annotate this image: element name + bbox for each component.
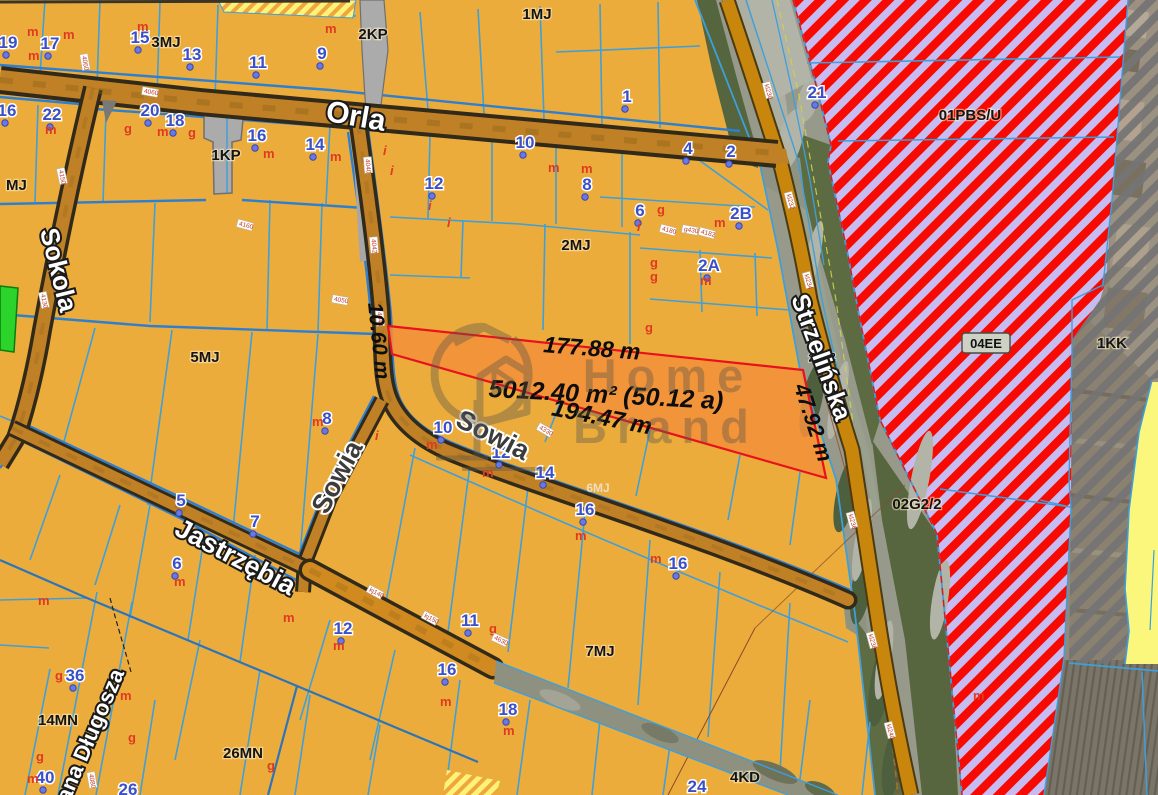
svg-text:m: m [263,146,275,161]
svg-text:g: g [36,749,44,764]
svg-text:4: 4 [683,139,693,158]
svg-text:14: 14 [306,135,325,154]
svg-text:Home: Home [583,349,754,402]
svg-text:16: 16 [669,554,688,573]
svg-text:5MJ: 5MJ [190,349,219,366]
svg-text:9: 9 [317,44,326,63]
svg-text:16: 16 [248,126,267,145]
svg-text:g: g [55,668,63,683]
svg-text:m: m [333,638,345,653]
svg-text:m: m [157,124,169,139]
svg-text:m: m [174,574,186,589]
svg-text:12: 12 [425,174,444,193]
svg-text:g: g [645,320,653,335]
svg-text:i: i [390,163,394,178]
svg-text:8: 8 [582,175,591,194]
svg-text:26MN: 26MN [223,745,263,762]
svg-text:4040: 4040 [363,159,371,174]
svg-text:m: m [63,27,75,42]
svg-text:2B: 2B [730,204,752,223]
svg-text:1MJ: 1MJ [522,6,551,23]
svg-text:17: 17 [41,34,60,53]
svg-text:4042: 4042 [369,239,377,254]
svg-text:16: 16 [0,101,16,120]
svg-text:i: i [383,143,387,158]
svg-text:02G2/2: 02G2/2 [892,496,941,513]
svg-text:26: 26 [119,780,138,795]
svg-text:m: m [312,414,324,429]
svg-text:m: m [440,694,452,709]
svg-text:01PBS/U: 01PBS/U [939,107,1002,124]
svg-text:6MJ: 6MJ [586,481,609,495]
svg-text:1KP: 1KP [211,147,240,164]
svg-text:m: m [548,160,560,175]
svg-text:i: i [428,198,432,213]
svg-text:1: 1 [622,87,631,106]
svg-text:g: g [128,730,136,745]
svg-text:g: g [650,255,658,270]
svg-text:5: 5 [176,491,185,510]
svg-text:Brand: Brand [573,400,759,453]
svg-text:14MN: 14MN [38,712,78,729]
svg-text:24: 24 [688,777,707,795]
svg-text:1KK: 1KK [1097,335,1127,352]
svg-text:11: 11 [249,53,267,72]
svg-text:7: 7 [250,512,259,531]
svg-text:8: 8 [322,409,331,428]
svg-text:m: m [426,437,438,452]
svg-text:m: m [45,122,57,137]
svg-text:12: 12 [334,619,353,638]
svg-text:10: 10 [434,418,453,437]
svg-text:7MJ: 7MJ [585,643,614,660]
svg-text:m: m [325,21,337,36]
svg-text:g: g [124,121,132,136]
svg-text:m: m [27,24,39,39]
svg-text:16: 16 [438,660,457,679]
svg-text:6: 6 [635,201,644,220]
svg-text:m: m [28,48,40,63]
svg-text:m: m [27,771,39,786]
svg-text:6: 6 [172,554,181,573]
svg-text:g: g [657,202,665,217]
svg-text:10: 10 [516,133,535,152]
svg-text:21: 21 [808,83,827,102]
svg-text:04EE: 04EE [970,336,1002,351]
svg-text:m: m [283,610,295,625]
svg-text:16: 16 [576,500,595,519]
svg-text:18: 18 [499,700,518,719]
svg-text:m: m [575,528,587,543]
svg-text:m: m [137,19,149,34]
svg-text:2MJ: 2MJ [561,237,590,254]
svg-text:19: 19 [0,33,17,52]
svg-text:m: m [650,551,662,566]
svg-text:i: i [447,215,451,230]
svg-text:m: m [38,593,50,608]
svg-text:20: 20 [141,101,160,120]
svg-text:4KD: 4KD [730,769,760,786]
svg-text:i: i [637,219,641,234]
svg-text:36: 36 [66,666,85,685]
svg-text:13: 13 [183,45,202,64]
svg-text:MJ: MJ [6,177,27,194]
svg-text:g: g [188,125,196,140]
svg-text:2KP: 2KP [358,26,387,43]
svg-text:14: 14 [536,463,555,482]
svg-text:i: i [375,428,379,443]
svg-text:g: g [267,758,275,773]
svg-text:m: m [714,215,726,230]
svg-text:m: m [973,688,985,703]
svg-text:m: m [503,723,515,738]
svg-text:m: m [700,273,712,288]
svg-text:11: 11 [461,611,479,630]
svg-text:m: m [581,161,593,176]
svg-text:g: g [650,269,658,284]
svg-text:m: m [330,149,342,164]
svg-text:3MJ: 3MJ [151,34,180,51]
svg-text:2: 2 [726,142,735,161]
